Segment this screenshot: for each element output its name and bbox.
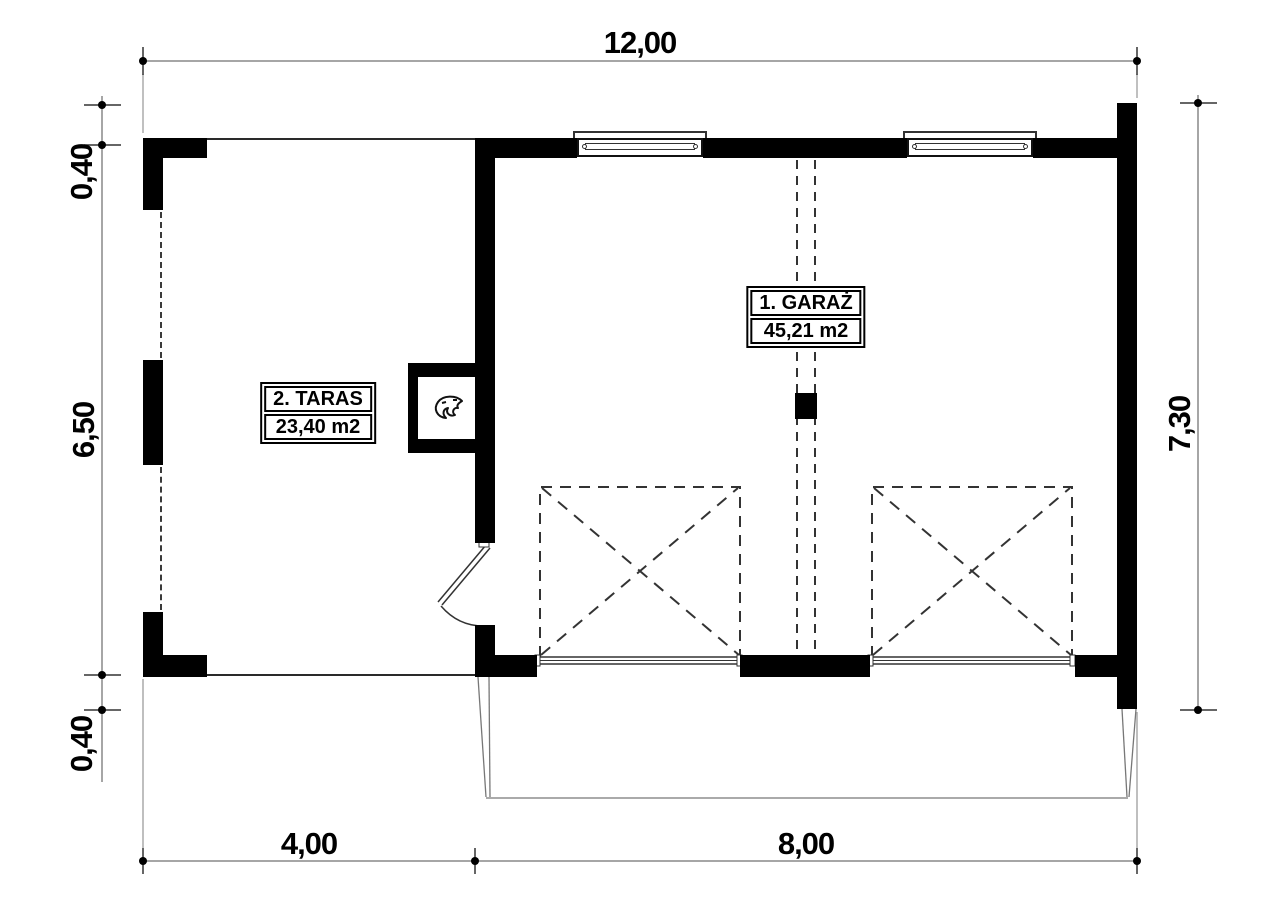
wall-terrace-bottom-stub (163, 655, 207, 677)
window-symbol-left (573, 130, 707, 158)
terrace-left-open-edge-bottom (160, 467, 162, 610)
niche-interior (418, 377, 475, 439)
window-pin (912, 144, 917, 149)
parking-stall-right (872, 487, 1072, 657)
room-label-garage: 1. GARAŻ 45,21 m2 (746, 286, 865, 348)
wall-niche (408, 363, 475, 453)
terrace-top-edge (207, 138, 475, 140)
wall-left-segment-middle (143, 360, 163, 465)
wall-top-segment-3 (1033, 138, 1117, 158)
door-swing (438, 541, 490, 626)
parking-stall-left (540, 487, 740, 657)
wall-left-segment-bottom (143, 612, 163, 677)
flame-icon (429, 394, 465, 422)
room-area: 45,21 m2 (750, 318, 861, 344)
terrace-left-open-edge-top (160, 212, 162, 358)
driveway-outline (478, 677, 1136, 798)
window-sill-end (573, 131, 575, 138)
room-name: 1. GARAŻ (750, 290, 861, 316)
niche-wall-bottom (408, 439, 475, 453)
dimension-label-overall-width: 12,00 (604, 25, 677, 61)
center-post (795, 393, 817, 419)
window-sill (573, 131, 707, 133)
window-glazing (915, 143, 1025, 150)
window-sill-end (1035, 131, 1037, 138)
window-sill (903, 131, 1037, 133)
wall-top-segment-2 (703, 138, 907, 158)
dimension-label-overall-height: 7,30 (1162, 396, 1198, 452)
wall-divider (475, 138, 495, 543)
wall-bottom-segment-2 (740, 655, 870, 677)
wall-bottom-segment-3 (1075, 655, 1117, 677)
dimension-label-garage-width: 8,00 (778, 826, 834, 862)
room-label-terrace: 2. TARAS 23,40 m2 (260, 382, 376, 444)
dimension-label-left-interior: 6,50 (66, 402, 102, 458)
wall-top-segment-1 (495, 138, 577, 158)
window-pin (582, 144, 587, 149)
floor-plan: 1. GARAŻ 45,21 m2 2. TARAS 23,40 m2 12,0… (0, 0, 1280, 905)
window-pin (693, 144, 698, 149)
window-symbol-right (903, 130, 1037, 158)
terrace-bottom-edge (207, 674, 475, 676)
wall-right-pilaster (1117, 103, 1137, 709)
window-sill-end (903, 131, 905, 138)
dimension-label-terrace-width: 4,00 (281, 826, 337, 862)
window-sill-end (705, 131, 707, 138)
niche-wall-top (408, 363, 475, 377)
wall-bottom-segment-1 (475, 655, 537, 677)
dimension-label-left-wall-bottom: 0,40 (64, 716, 100, 772)
garage-door-right (868, 655, 1075, 666)
dimension-label-left-wall-top: 0,40 (64, 144, 100, 200)
garage-door-left (535, 655, 742, 666)
room-area: 23,40 m2 (264, 414, 372, 440)
window-glazing (585, 143, 695, 150)
room-name: 2. TARAS (264, 386, 372, 412)
window-pin (1023, 144, 1028, 149)
wall-left-segment-top (143, 138, 163, 210)
